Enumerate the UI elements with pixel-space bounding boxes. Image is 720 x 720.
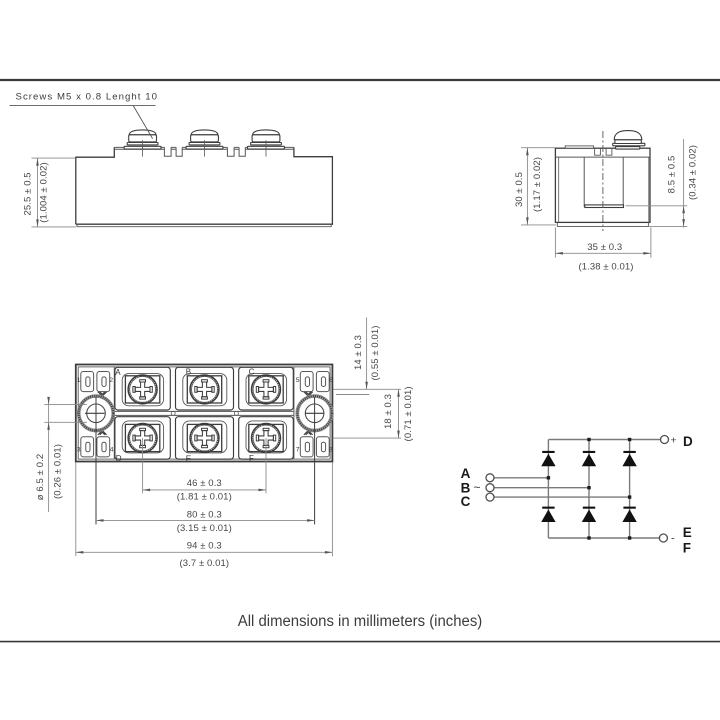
svg-text:30 ± 0.5: 30 ± 0.5: [514, 172, 525, 207]
svg-text:Screws M5 x 0.8 Lenght 10: Screws M5 x 0.8 Lenght 10: [16, 92, 159, 103]
svg-text:4: 4: [110, 446, 114, 453]
svg-text:1: 1: [77, 377, 81, 384]
svg-text:B: B: [186, 367, 191, 376]
svg-text:(1.38 ± 0.01): (1.38 ± 0.01): [578, 261, 633, 272]
svg-text:(1.81 ± 0.01): (1.81 ± 0.01): [177, 491, 232, 502]
svg-text:C: C: [461, 494, 471, 509]
svg-text:(0.55 ± 0.01): (0.55 ± 0.01): [370, 325, 381, 380]
svg-text:(3.7 ± 0.01): (3.7 ± 0.01): [179, 558, 229, 569]
svg-text:+: +: [671, 435, 677, 447]
svg-text:18 ± 0.3: 18 ± 0.3: [383, 394, 394, 429]
svg-text:A: A: [461, 466, 471, 481]
svg-text:3: 3: [77, 446, 81, 453]
svg-text:94 ± 0.3: 94 ± 0.3: [187, 541, 222, 552]
svg-text:(0.34 ± 0.02): (0.34 ± 0.02): [687, 145, 698, 200]
svg-text:8: 8: [329, 446, 333, 453]
svg-text:(1.004 ± 0.02): (1.004 ± 0.02): [39, 162, 50, 222]
svg-text:All dimensions in millimeters: All dimensions in millimeters (inches): [238, 613, 483, 630]
svg-text:A: A: [115, 368, 121, 377]
svg-text:7: 7: [296, 446, 300, 453]
svg-text:46 ± 0.3: 46 ± 0.3: [187, 478, 222, 489]
svg-text:F: F: [683, 541, 691, 556]
svg-text:~: ~: [474, 481, 481, 495]
svg-text:80 ± 0.3: 80 ± 0.3: [187, 510, 222, 521]
svg-text:E: E: [683, 525, 692, 540]
svg-text:2: 2: [109, 377, 113, 384]
svg-text:8.5 ± 0.5: 8.5 ± 0.5: [667, 156, 678, 194]
svg-text:C: C: [249, 367, 255, 376]
svg-text:(1.17 ± 0.02): (1.17 ± 0.02): [532, 157, 543, 212]
svg-text:ø 6.5 ± 0.2: ø 6.5 ± 0.2: [35, 454, 46, 500]
svg-text:35 ± 0.3: 35 ± 0.3: [587, 242, 622, 253]
svg-text:6: 6: [329, 377, 333, 384]
svg-text:F: F: [249, 454, 254, 463]
svg-text:D: D: [116, 454, 122, 463]
svg-text:14 ± 0.3: 14 ± 0.3: [353, 335, 364, 370]
svg-text:(0.71 ± 0.01): (0.71 ± 0.01): [403, 386, 414, 441]
svg-text:(3.15 ± 0.01): (3.15 ± 0.01): [177, 523, 232, 534]
svg-text:25.5 ± 0.5: 25.5 ± 0.5: [23, 172, 34, 215]
svg-text:-: -: [671, 533, 675, 545]
svg-text:D: D: [683, 434, 693, 449]
svg-text:(0.26 ± 0.01): (0.26 ± 0.01): [53, 444, 64, 499]
svg-text:E: E: [186, 454, 191, 463]
svg-text:5: 5: [296, 377, 300, 384]
